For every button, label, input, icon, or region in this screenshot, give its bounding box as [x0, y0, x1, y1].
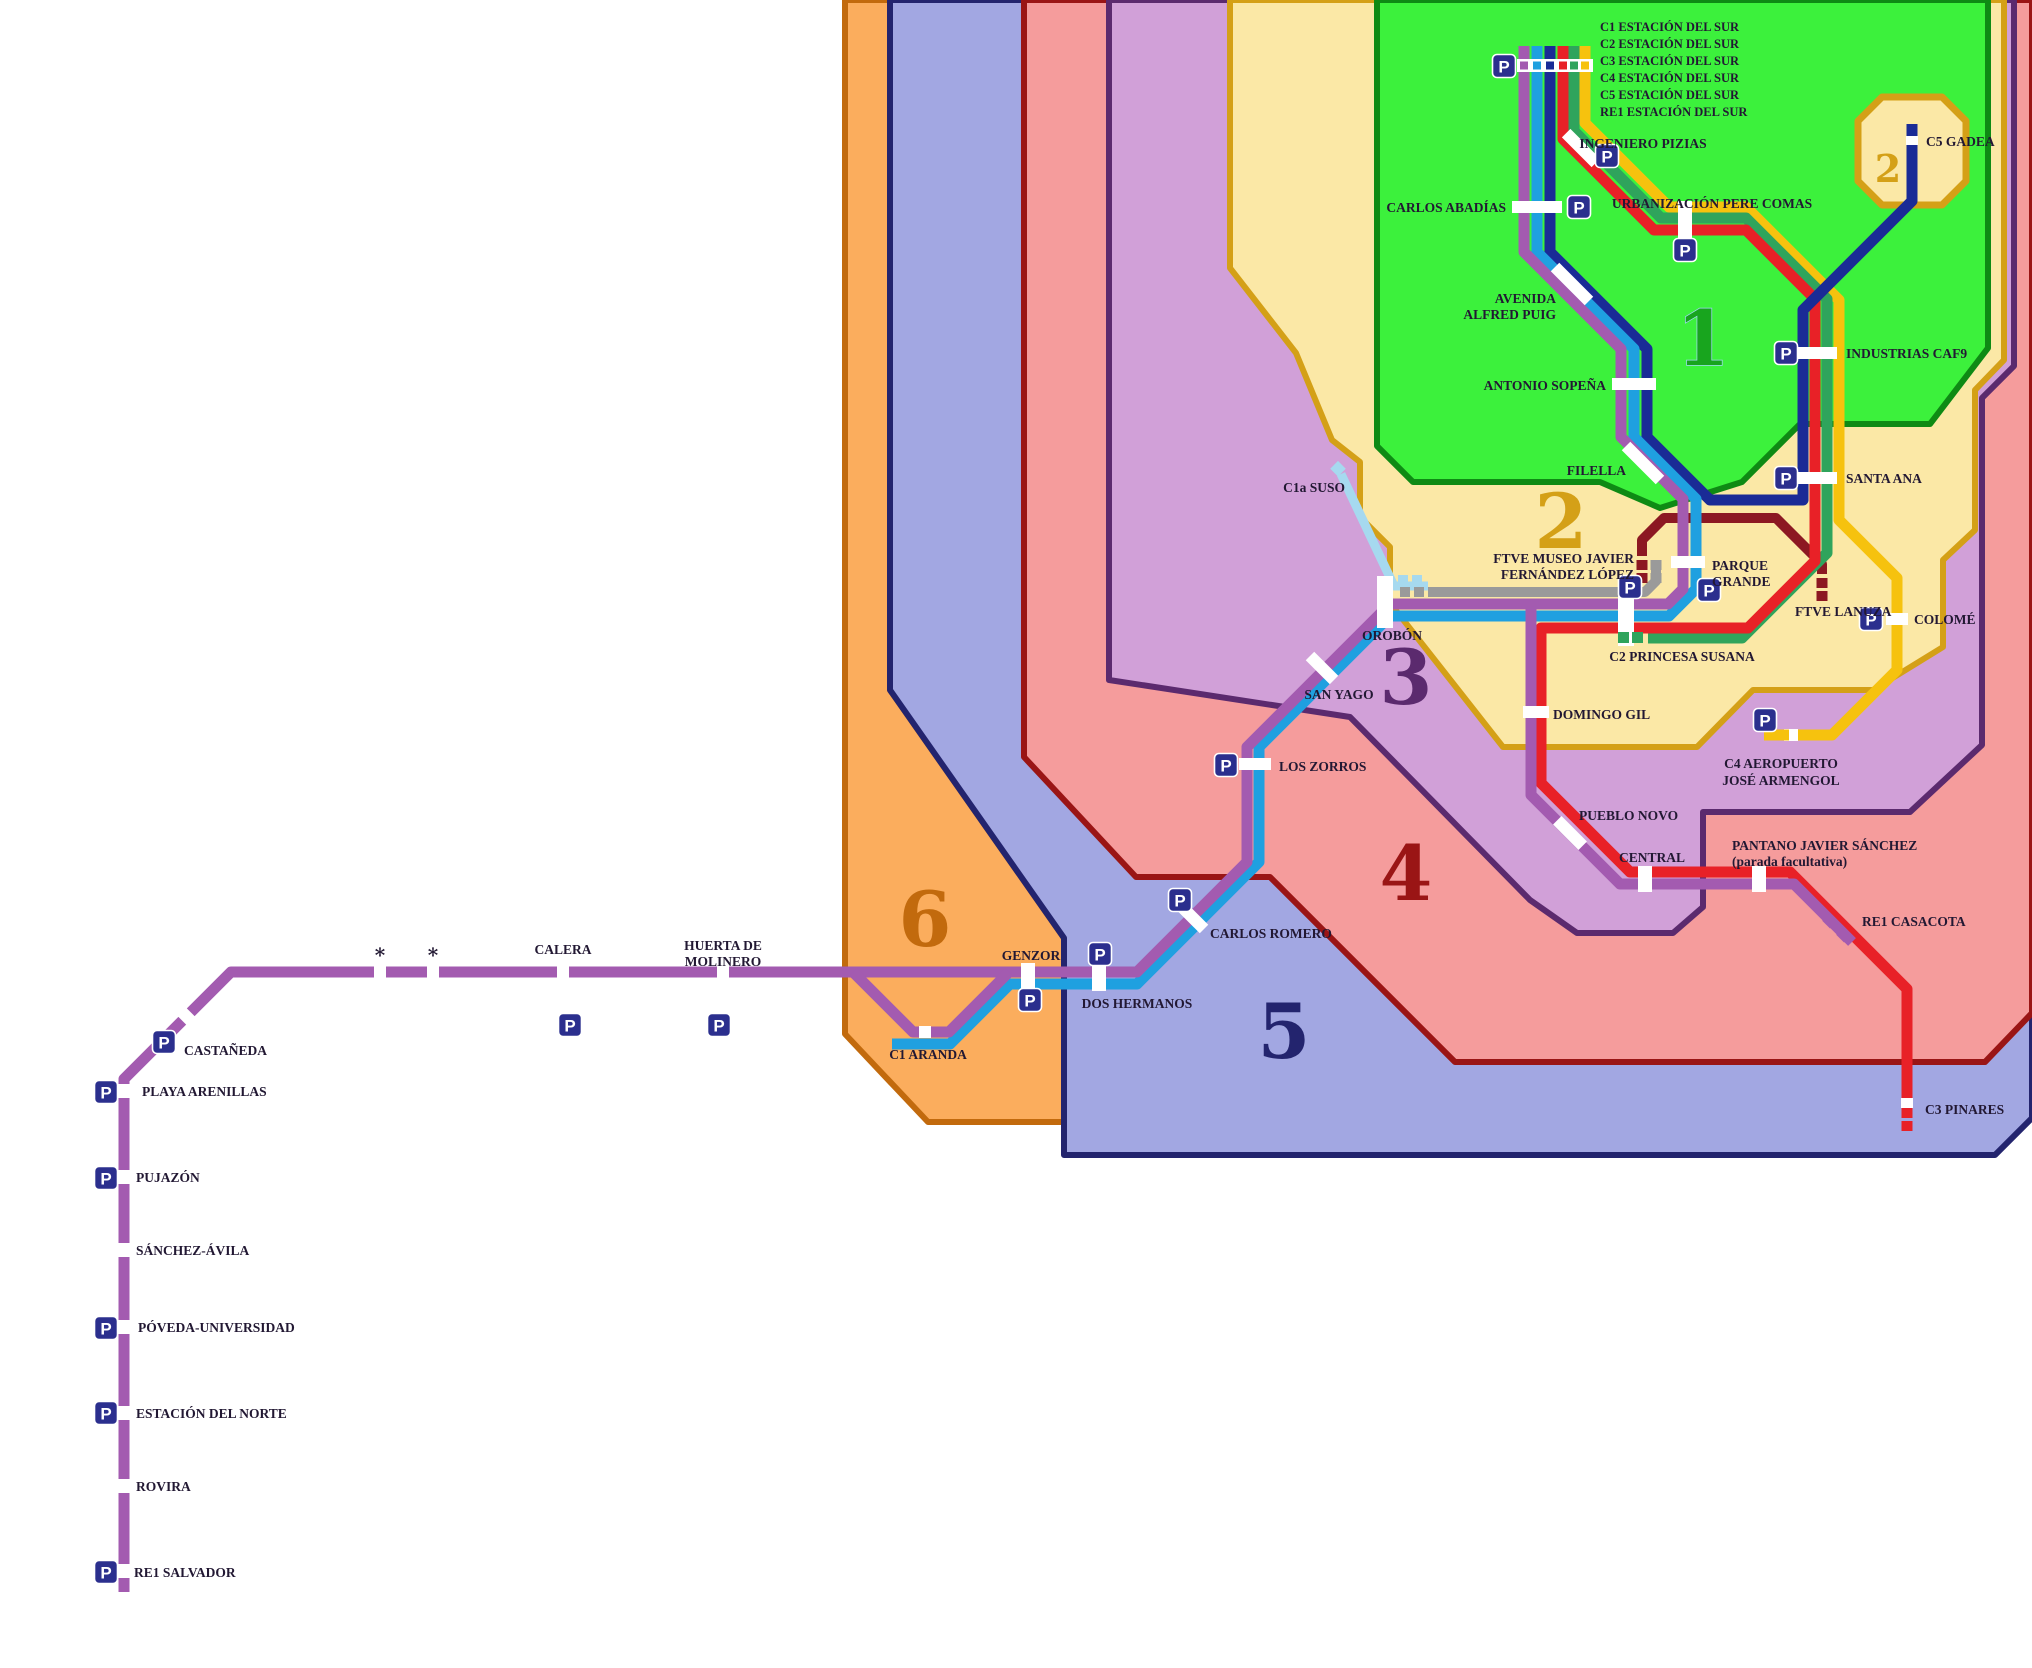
label-esds-c1: C1 ESTACIÓN DEL SUR: [1600, 20, 1740, 34]
station-industrias-caf9: [1793, 347, 1837, 359]
label-carlos-abadias: CARLOS ABADÍAS: [1386, 200, 1506, 215]
link-orobon-marker: [1400, 587, 1410, 597]
parking-icon: [1493, 55, 1516, 78]
label-gadea: C5 GADEA: [1926, 134, 1995, 149]
parking-icon: [153, 1031, 176, 1054]
link-museo-marker: [1651, 560, 1662, 570]
station-parque-grande: [1671, 556, 1705, 568]
aeropuerto-marker: [1778, 730, 1789, 741]
zone-2-exclave-number: 2: [1875, 146, 1901, 191]
label-asterisk-1: *: [375, 943, 386, 967]
label-urbanizacion: URBANIZACIÓN PERE COMAS: [1612, 196, 1812, 211]
label-asterisk-2: *: [428, 943, 439, 967]
station-calera: [557, 961, 569, 985]
pinares-marker: [1902, 1108, 1913, 1118]
zone-6-number: 6: [899, 875, 952, 964]
label-esds-c3: C3 ESTACIÓN DEL SUR: [1600, 54, 1740, 68]
label-orobon: OROBÓN: [1362, 628, 1422, 643]
parking-icon: [95, 1317, 118, 1340]
label-aeropuerto-2: JOSÉ ARMENGOL: [1722, 773, 1839, 788]
lanuza-marker: [1817, 591, 1828, 601]
station-domingo-gil: [1523, 706, 1549, 718]
label-pueblo-novo: PUEBLO NOVO: [1579, 808, 1678, 823]
transit-map: P 1 2 3 4 5 6 2: [0, 0, 2032, 1668]
museo-marker: [1637, 560, 1648, 570]
parking-icon: [1568, 196, 1591, 219]
parking-icon: [1215, 754, 1238, 777]
zone-4-number: 4: [1380, 829, 1433, 918]
station-playa-arenillas: [117, 1084, 131, 1098]
label-aeropuerto-1: C4 AEROPUERTO: [1724, 756, 1838, 771]
station-sanchez-avila: [117, 1243, 131, 1257]
zone-1-number: 1: [1677, 294, 1730, 383]
station-salvador: [117, 1564, 131, 1578]
parking-icon: [95, 1167, 118, 1190]
c1a-orobon-marker: [1412, 575, 1422, 585]
label-sanchez-avila: SÁNCHEZ-ÁVILA: [136, 1243, 250, 1258]
label-museo-1: FTVE MUSEO JAVIER: [1493, 551, 1634, 566]
label-antonio-sopena: ANTONIO SOPEÑA: [1484, 378, 1607, 393]
label-pantano-1: PANTANO JAVIER SÁNCHEZ: [1732, 838, 1917, 853]
label-pujazon: PUJAZÓN: [136, 1170, 200, 1185]
label-esds-c2: C2 ESTACIÓN DEL SUR: [1600, 37, 1740, 51]
label-filella: FILELLA: [1567, 463, 1627, 478]
station-pantano: [1752, 866, 1766, 892]
label-parque-2: GRANDE: [1712, 574, 1771, 589]
parking-icon: [1674, 239, 1697, 262]
station-genzor: [1021, 963, 1035, 991]
station-gadea-gap: [1906, 136, 1918, 145]
station-aranda-gap: [919, 1026, 931, 1038]
label-parque-1: PARQUE: [1712, 558, 1768, 573]
label-museo-2: FERNÁNDEZ LÓPEZ: [1501, 567, 1634, 582]
label-colome: COLOMÉ: [1914, 612, 1976, 627]
gadea-marker: [1907, 148, 1918, 156]
parking-icon: [95, 1081, 118, 1104]
parking-icon: [559, 1014, 582, 1037]
label-huerta-2: MOLINERO: [685, 954, 762, 969]
gadea-marker: [1907, 126, 1918, 134]
station-poveda-universidad: [117, 1320, 131, 1334]
label-esds-re1: RE1 ESTACIÓN DEL SUR: [1600, 105, 1748, 119]
parking-icon: [1089, 943, 1112, 966]
label-huerta-1: HUERTA DE: [684, 938, 762, 953]
station-central: [1638, 866, 1652, 892]
link-museo-marker: [1651, 573, 1662, 583]
parking-icon: [1169, 889, 1192, 912]
label-casacota: RE1 CASACOTA: [1862, 914, 1966, 929]
parking-icon: [1754, 709, 1777, 732]
princesa-marker: [1632, 632, 1643, 643]
station-los-zorros: [1239, 758, 1271, 770]
label-carlos-romero: CARLOS ROMERO: [1210, 926, 1332, 941]
lanuza-marker: [1817, 578, 1828, 588]
station-rovira: [117, 1479, 131, 1493]
princesa-marker: [1618, 632, 1629, 643]
label-estacion-del-norte: ESTACIÓN DEL NORTE: [136, 1406, 287, 1421]
parking-icon: [1019, 989, 1042, 1012]
label-calera: CALERA: [534, 942, 591, 957]
label-suso: C1a SUSO: [1283, 480, 1345, 495]
label-central: CENTRAL: [1619, 850, 1685, 865]
label-esds-c5: C5 ESTACIÓN DEL SUR: [1600, 88, 1740, 102]
label-salvador: RE1 SALVADOR: [134, 1565, 236, 1580]
station-dos-hermanos: [1092, 963, 1106, 991]
label-aranda: C1 ARANDA: [889, 1047, 967, 1062]
station-carlos-abadias: [1512, 201, 1562, 213]
label-ingeniero-pizias: INGENIERO PIZIAS: [1579, 136, 1706, 151]
parking-icon: [1775, 342, 1798, 365]
label-los-zorros: LOS ZORROS: [1279, 759, 1366, 774]
parking-icon: [708, 1014, 731, 1037]
zone-5-number: 5: [1258, 987, 1311, 1076]
label-rovira: ROVIRA: [136, 1479, 191, 1494]
c1a-orobon-marker: [1398, 575, 1408, 585]
label-esds-c4: C4 ESTACIÓN DEL SUR: [1600, 71, 1740, 85]
station-pinares-gap: [1901, 1098, 1913, 1108]
label-playa-arenillas: PLAYA ARENILLAS: [142, 1084, 267, 1099]
label-dos-hermanos: DOS HERMANOS: [1082, 996, 1193, 1011]
pinares-marker: [1902, 1121, 1913, 1131]
label-industrias: INDUSTRIAS CAF9: [1846, 346, 1967, 361]
label-san-yago: SAN YAGO: [1304, 687, 1373, 702]
label-avenida-1: AVENIDA: [1495, 291, 1557, 306]
label-princesa: C2 PRINCESA SUSANA: [1609, 649, 1755, 664]
station-orobon: [1377, 576, 1393, 628]
station-estacion-del-norte: [117, 1406, 131, 1420]
label-domingo-gil: DOMINGO GIL: [1553, 707, 1650, 722]
station-santa-ana: [1793, 472, 1837, 484]
parking-icon: [95, 1402, 118, 1425]
label-santa-ana: SANTA ANA: [1846, 471, 1922, 486]
label-genzor: GENZOR: [1002, 948, 1061, 963]
link-orobon-marker: [1414, 587, 1424, 597]
station-antonio-sopena: [1612, 378, 1656, 390]
label-poveda: PÓVEDA-UNIVERSIDAD: [138, 1320, 295, 1335]
zone-3-number: 3: [1380, 633, 1433, 722]
label-pantano-2: (parada facultativa): [1732, 854, 1847, 869]
station-pujazon: [117, 1170, 131, 1184]
label-avenida-2: ALFRED PUIG: [1463, 307, 1556, 322]
parking-icon: [1775, 467, 1798, 490]
label-lanuza: FTVE LANUZA: [1795, 604, 1892, 619]
label-pinares: C3 PINARES: [1925, 1102, 2004, 1117]
parking-icon: [95, 1561, 118, 1584]
label-castaneda: CASTAÑEDA: [184, 1043, 267, 1058]
